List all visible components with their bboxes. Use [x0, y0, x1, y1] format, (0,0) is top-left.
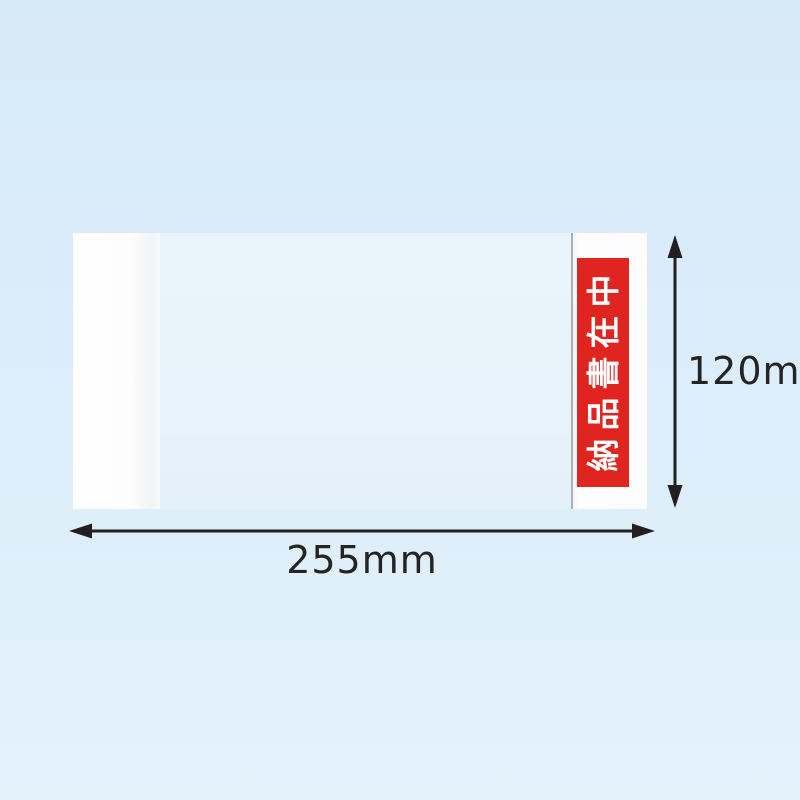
arrowhead-left-icon	[69, 524, 92, 539]
height-dimension-arrow	[668, 235, 683, 508]
width-dimension-arrow	[69, 524, 655, 539]
product-photo-stage: 納品書在中 255mm 120mm	[0, 0, 800, 800]
height-dimension-label: 120mm	[687, 352, 800, 390]
arrowhead-right-icon	[632, 524, 655, 539]
arrowhead-up-icon	[668, 235, 683, 258]
dimension-arrows	[0, 0, 800, 800]
arrowhead-down-icon	[668, 485, 683, 508]
width-dimension-label: 255mm	[162, 541, 562, 579]
